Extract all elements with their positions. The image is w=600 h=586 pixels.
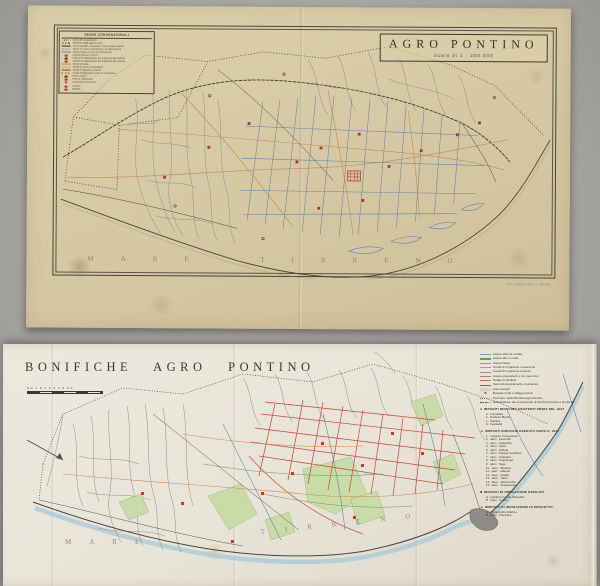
legend-swatch-sq xyxy=(65,60,68,63)
legend-section-bullet: ■ xyxy=(480,491,482,495)
legend-section-bullet: ● xyxy=(480,408,482,412)
legend-swatch-line xyxy=(480,367,491,368)
legend-swatch-line xyxy=(62,64,71,65)
legend-label: Capoluogo di Provincia xyxy=(73,82,97,85)
legend-row: Borgate xyxy=(61,88,151,91)
map-border-frame: AGRO PONTINO Scala di 1 : 200.000 SEGNI … xyxy=(52,25,557,279)
legend-swatch-line xyxy=(62,52,71,53)
legend-sections: ●IMPIANTI IDROVORI ESISTENTI PRIMA DEL 1… xyxy=(480,408,594,518)
legend-swatch-line xyxy=(62,46,71,47)
legend-label: Borgate xyxy=(72,88,80,91)
legend-swatch-sq xyxy=(64,88,67,91)
black-town-dots xyxy=(174,72,496,241)
legend-section-items: a · Forcellatab · Pantano Binottic · Cal… xyxy=(486,413,594,427)
orange-canals xyxy=(63,434,473,497)
top-map-title: AGRO PONTINO xyxy=(385,37,543,53)
top-map-title-box: AGRO PONTINO Scala di 1 : 200.000 xyxy=(380,33,548,62)
bottom-map-legend: Acque esterne ed alteAcque alte e medieA… xyxy=(480,352,594,518)
photo-backdrop: AGRO PONTINO Scala di 1 : 200.000 SEGNI … xyxy=(0,0,600,586)
bonifica-perimeter xyxy=(39,364,548,500)
legend-row: Delimitazione dei comprensori di bonific… xyxy=(480,401,594,404)
legend-section-item: B · idem · S. Vito xyxy=(486,499,594,503)
bottom-map-title: BONIFICHE AGRO PONTINO xyxy=(25,360,315,375)
drainage-channels xyxy=(127,87,236,242)
legend-swatch-line xyxy=(480,358,491,359)
legend-section-bullet: ▲ xyxy=(480,506,484,510)
legend-swatch-line xyxy=(480,372,491,373)
bottom-sea-word-mare: MARE xyxy=(65,538,157,546)
legend-swatch-dash xyxy=(62,67,71,68)
top-map-scale: Scala di 1 : 200.000 xyxy=(385,53,543,59)
legend-swatch-line xyxy=(480,385,491,386)
legend-section: ■IMPIANTI DI IRRIGAZIONE ESEGUITIA · Imp… xyxy=(480,491,594,503)
top-map-legend-rows: Linea del comprensorioPerimetro delle se… xyxy=(61,39,151,91)
legend-swatch-dot xyxy=(480,398,491,399)
legend-swatch-patch xyxy=(480,388,491,391)
legend-swatch-dash xyxy=(62,73,71,74)
top-map-legend-title: SEGNI CONVENZIONALI xyxy=(62,33,152,39)
legend-swatch-star: ✱ xyxy=(480,392,491,396)
legend-section: ▲IMPIANTI IDROVORI ESEGUITI DOPO IL 1927… xyxy=(480,430,594,488)
foxing-spot xyxy=(38,45,54,61)
legend-section-bullet: ▲ xyxy=(480,430,484,434)
town-littoria xyxy=(348,171,361,181)
legend-swatch-line xyxy=(480,354,491,355)
top-map-legend: SEGNI CONVENZIONALI Linea del comprensor… xyxy=(58,31,154,94)
legend-swatch-line xyxy=(480,363,491,364)
legend-swatch-line xyxy=(480,376,491,377)
legend-section: ▲IMPIANTI DI IRRIGAZIONE IN PROGETTOA · … xyxy=(480,506,594,518)
legend-section-item: B · idem · Piscinara xyxy=(486,514,594,518)
printer-credit: IST. GRAFICO — ROMA xyxy=(507,282,552,286)
top-map-sheet: AGRO PONTINO Scala di 1 : 200.000 SEGNI … xyxy=(26,5,571,330)
legend-section-items: A · Impianto Canale MussoliniB · idem · … xyxy=(486,496,594,503)
bottom-map-scalebar: Km 1 0 1 2 3 4 5 Km xyxy=(27,386,103,394)
scalebar-label: Km 1 0 1 2 3 4 5 Km xyxy=(27,386,103,390)
foxing-spot xyxy=(146,296,176,314)
scalebar-rule xyxy=(27,391,103,395)
legend-swatch-dashdot xyxy=(480,402,491,403)
bottom-map-sheet: MARE TIRRENO BONIFICHE AGRO PONTINO Km 1… xyxy=(3,344,597,586)
legend-label: Ponti in costruzione xyxy=(73,78,93,81)
legend-swatch-line xyxy=(480,380,491,381)
legend-section-item: d · Cavatella xyxy=(486,423,594,427)
legend-line-items: Acque esterne ed alteAcque alte e medieA… xyxy=(480,353,594,404)
legend-swatch-line xyxy=(62,70,71,71)
legend-swatch-dash xyxy=(62,49,71,50)
legend-section-items: 1 · Impianto Capograssa2 · idem · Lavore… xyxy=(486,435,594,488)
legend-swatch-dot xyxy=(62,40,71,41)
legend-section: ●IMPIANTI IDROVORI ESISTENTI PRIMA DEL 1… xyxy=(480,408,594,427)
north-arrow xyxy=(23,436,71,466)
mountain-streams xyxy=(308,52,477,123)
legend-section-item: 15 · idem · Acquasanta xyxy=(486,484,594,488)
legend-section-items: A · Impianto Rio MartinoB · idem · Pisci… xyxy=(486,511,594,518)
legend-label: Delimitazione dei comprensori di bonific… xyxy=(493,401,574,404)
legend-swatch-dash xyxy=(62,43,71,44)
